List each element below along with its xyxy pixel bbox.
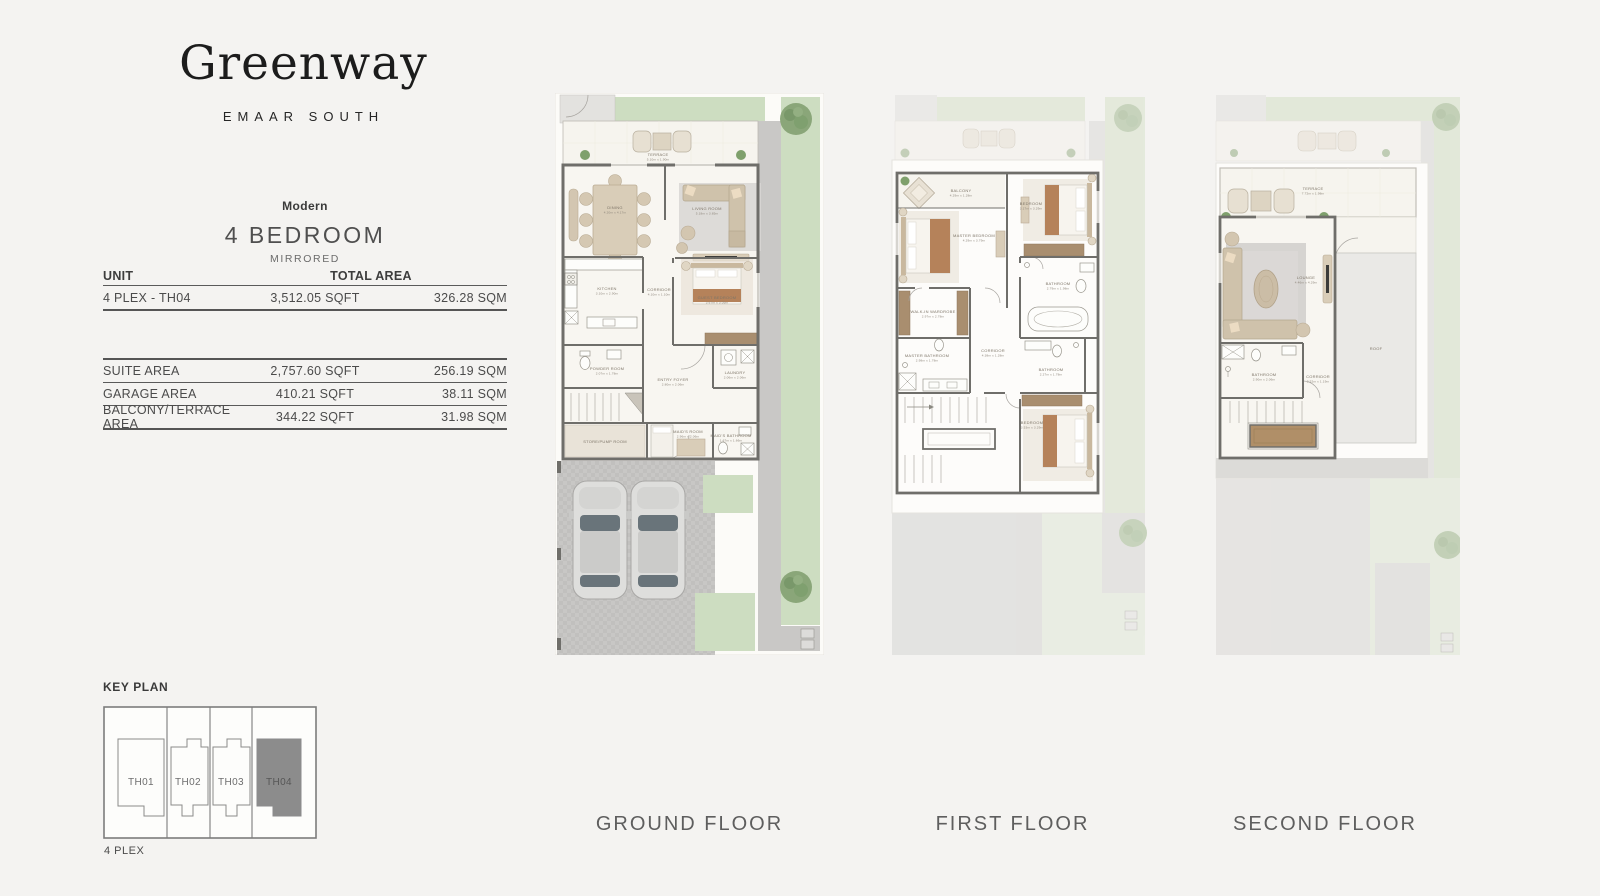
wardrobe — [705, 333, 759, 345]
row-sqm: 256.19 SQM — [395, 364, 507, 378]
room-dims: 4.20m x 4.17m — [604, 211, 627, 215]
room-label: MASTER BEDROOM — [953, 233, 995, 238]
room-label: BATHROOM — [1252, 372, 1277, 377]
unit-heading: Modern 4 BEDROOM MIRRORED — [103, 199, 507, 265]
utility-meter — [801, 629, 814, 638]
unit-sqft: 3,512.05 SQFT — [235, 291, 395, 305]
room-label: MAID'S ROOM — [673, 429, 703, 434]
room-dims: 5.18m x 3.85m — [696, 212, 719, 216]
wardrobe — [899, 291, 910, 335]
car-top-view — [627, 481, 689, 599]
key-plan-unit-th03: TH03 — [218, 777, 244, 788]
bed — [899, 208, 950, 283]
row-label: GARAGE AREA — [103, 387, 235, 401]
room-dims: 2.07m x 1.78m — [596, 372, 619, 376]
key-plan-unit-th02: TH02 — [175, 777, 201, 788]
room-label: LOUNGE — [1297, 275, 1315, 280]
room-dims: 3.17m x 3.29m — [1020, 207, 1043, 211]
column-header-total-area: TOTAL AREA — [235, 269, 507, 283]
wardrobe — [957, 291, 968, 335]
room-dims: 4.29m x 3.79m — [963, 239, 986, 243]
room-dims: 2.98m x 1.78m — [916, 359, 939, 363]
room-label: KITCHEN — [597, 286, 616, 291]
room-label: BEDROOM — [1021, 420, 1043, 425]
room-dims: 1.67m x 1.66m — [720, 439, 743, 443]
room-label: DINING — [607, 205, 623, 210]
room-label: LIVING ROOM — [692, 206, 721, 211]
table-row-suite-area: SUITE AREA 2,757.60 SQFT 256.19 SQM — [103, 360, 507, 383]
outdoor-sofa-set — [633, 131, 691, 152]
room-dims: 4.46m x 4.29m — [1295, 281, 1318, 285]
area-table-header: UNIT TOTAL AREA — [103, 266, 507, 286]
outdoor-seating-set — [1228, 189, 1294, 213]
floor-label-first: FIRST FLOOR — [875, 813, 1150, 836]
second-floor-plan: TERRACE 7.72m x 1.98m LOUNGE 4.46m x 4.2… — [1190, 93, 1460, 655]
plant-icon — [736, 150, 746, 160]
room-dims: 3.53m x 3.29m — [1021, 426, 1044, 430]
room-dims: 2.27m x 1.78m — [1040, 373, 1063, 377]
row-sqft: 410.21 SQFT — [235, 387, 395, 401]
room-label: BATHROOM — [1046, 281, 1071, 286]
room-dims: 4.10m x 1.10m — [648, 293, 671, 297]
room-label: LAUNDRY — [725, 370, 746, 375]
room-label: ROOF — [1370, 346, 1383, 351]
key-plan-title: KEY PLAN — [103, 680, 168, 694]
key-plan-unit-th01: TH01 — [128, 777, 154, 788]
row-label: SUITE AREA — [103, 364, 235, 378]
room-dims: 2.06m x 2.06m — [724, 376, 747, 380]
column-header-unit: UNIT — [103, 269, 235, 283]
room-label: TERRACE — [1303, 186, 1324, 191]
table-gap — [103, 311, 507, 358]
room-label: TERRACE — [648, 152, 669, 157]
room-dims: 4.38m x 1.28m — [982, 354, 1005, 358]
bed — [1043, 405, 1094, 477]
room-label: MASTER BATHROOM — [905, 353, 949, 358]
room-dims: 5.10m x 1.90m — [647, 158, 670, 162]
row-sqm: 38.11 SQM — [395, 387, 507, 401]
key-plan-unit-th04: TH04 — [266, 777, 292, 788]
key-plan-caption: 4 PLEX — [104, 845, 144, 857]
utility-meter — [801, 640, 814, 649]
tree-icon — [780, 571, 812, 603]
room-label: POWDER ROOM — [590, 366, 624, 371]
tree-icon — [780, 103, 812, 135]
brand-block: Greenway EMAAR SOUTH — [96, 40, 511, 124]
room-label: GUEST BEDROOM — [698, 295, 737, 300]
table-row-balcony-terrace-area: BALCONY/TERRACE AREA 344.22 SQFT 31.98 S… — [103, 406, 507, 430]
room-dims: 2.79m x 1.98m — [1047, 287, 1070, 291]
car-top-view — [569, 481, 631, 599]
row-sqm: 31.98 SQM — [395, 410, 507, 424]
unit-label: 4 PLEX - TH04 — [103, 291, 235, 305]
room-label: ENTRY FOYER — [657, 377, 688, 382]
unit-title: 4 BEDROOM — [103, 222, 507, 249]
stair-landing — [1250, 425, 1316, 447]
room-dims: 7.72m x 1.98m — [1302, 192, 1325, 196]
wardrobe — [1024, 244, 1084, 256]
room-label: CORRIDOR — [981, 348, 1005, 353]
room-label: CORRIDOR — [1306, 374, 1330, 379]
brand-logo: Greenway — [96, 40, 511, 87]
room-dims: 4.29m x 1.28m — [950, 194, 973, 198]
dresser — [996, 231, 1005, 257]
key-plan-diagram: TH01 TH02 TH03 TH04 — [103, 706, 317, 839]
brochure-page: Greenway EMAAR SOUTH Modern 4 BEDROOM MI… — [0, 0, 1600, 896]
room-dims: 2.96m x 2.06m — [677, 435, 700, 439]
room-label: BATHROOM — [1039, 367, 1064, 372]
room-label: BALCONY — [951, 188, 972, 193]
unit-variant: MIRRORED — [103, 253, 507, 265]
tv-console — [1323, 255, 1332, 303]
room-dims: 2.90m x 2.06m — [1253, 378, 1276, 382]
wardrobe — [1022, 395, 1082, 406]
ground-floor-plan: TERRACE 5.10m x 1.90m DINING 4.20m x 4.1… — [555, 93, 824, 655]
floor-label-second: SECOND FLOOR — [1190, 813, 1460, 836]
room-label: MAID'S BATHROOM — [710, 433, 751, 438]
room-label: WALK-IN WARDROBE — [910, 309, 955, 314]
area-breakdown-rows: SUITE AREA 2,757.60 SQFT 256.19 SQM GARA… — [103, 358, 507, 430]
row-label: BALCONY/TERRACE AREA — [103, 403, 235, 431]
room-label: CORRIDOR — [647, 287, 671, 292]
room-dims: 3.10m x 2.90m — [596, 292, 619, 296]
room-dims: 2.97m x 2.78m — [922, 315, 945, 319]
room-dims: 2.80m x 2.06m — [662, 383, 685, 387]
first-floor-plan: BALCONY 4.29m x 1.28m MASTER BEDROOM 4.2… — [875, 93, 1150, 655]
room-dims: 3.67m x 3.05m — [706, 301, 729, 305]
area-table: UNIT TOTAL AREA 4 PLEX - TH04 3,512.05 S… — [103, 266, 507, 430]
brand-tagline: EMAAR SOUTH — [96, 109, 511, 124]
plant-icon — [580, 150, 590, 160]
table-row-unit: 4 PLEX - TH04 3,512.05 SQFT 326.28 SQM — [103, 286, 507, 311]
floor-label-ground: GROUND FLOOR — [555, 813, 824, 836]
row-sqft: 344.22 SQFT — [235, 410, 395, 424]
unit-sqm: 326.28 SQM — [395, 291, 507, 305]
plant-icon — [901, 177, 910, 186]
room-label: BEDROOM — [1020, 201, 1042, 206]
row-sqft: 2,757.60 SQFT — [235, 364, 395, 378]
unit-collection: Modern — [103, 199, 507, 213]
room-label: STORE/PUMP ROOM — [583, 439, 627, 444]
